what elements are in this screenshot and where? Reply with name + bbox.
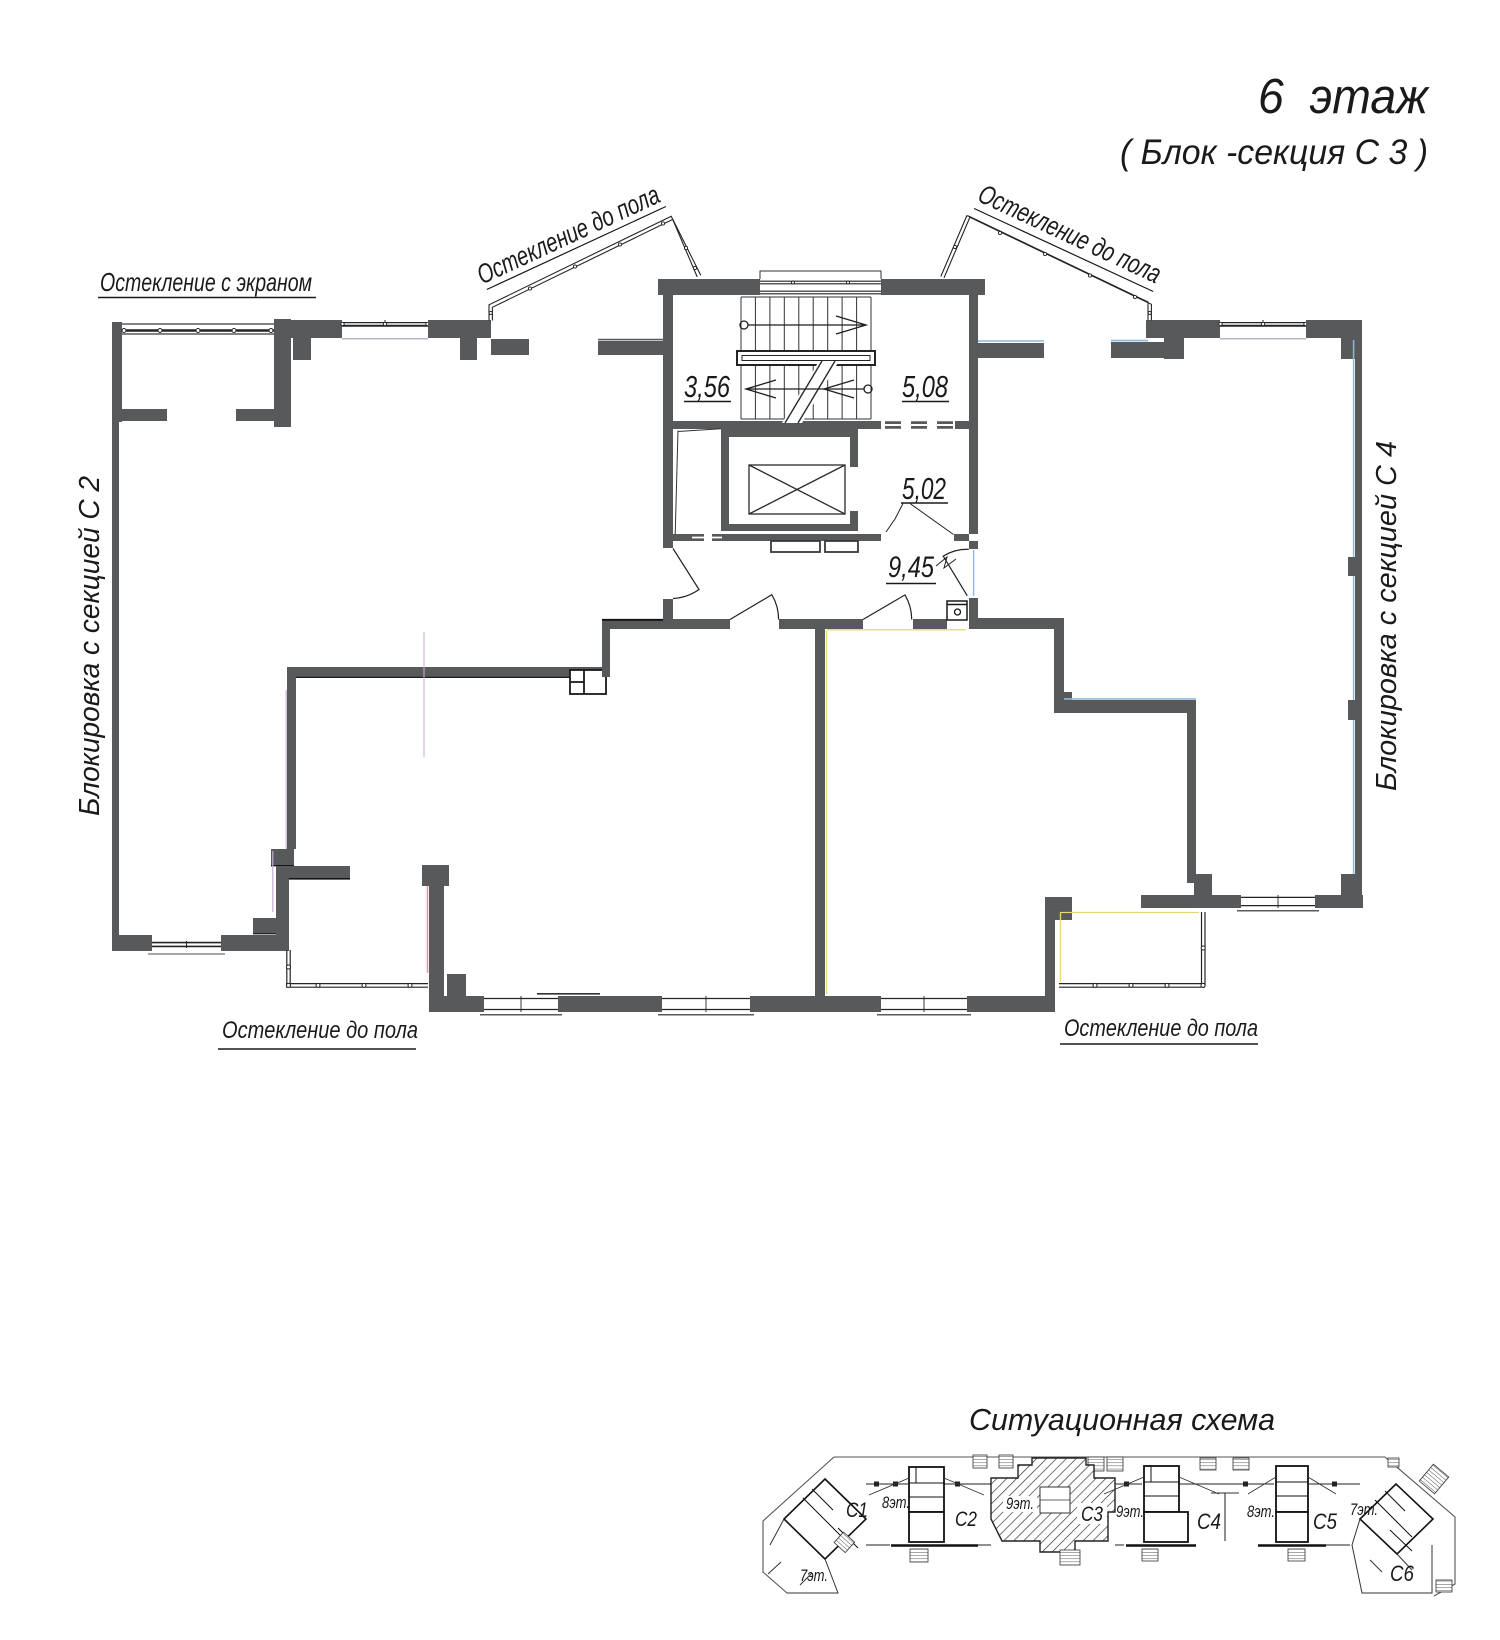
svg-text:7эт.: 7эт. — [1350, 1500, 1378, 1519]
svg-text:6 этаж: 6 этаж — [1258, 70, 1430, 124]
svg-text:Блокировка с секцией С 2: Блокировка с секцией С 2 — [74, 476, 106, 816]
svg-text:9,45: 9,45 — [888, 551, 934, 584]
svg-text:8эт.: 8эт. — [1247, 1502, 1275, 1521]
svg-text:Остекление до пола: Остекление до пола — [222, 1017, 418, 1044]
svg-text:9эт.: 9эт. — [1006, 1494, 1034, 1513]
svg-text:7эт.: 7эт. — [800, 1566, 828, 1585]
svg-text:8эт.: 8эт. — [882, 1493, 910, 1512]
svg-text:Ситуационная схема: Ситуационная схема — [969, 1402, 1275, 1437]
svg-text:5,02: 5,02 — [902, 471, 946, 506]
svg-text:С4: С4 — [1197, 1509, 1221, 1534]
svg-text:С3: С3 — [1081, 1503, 1103, 1526]
svg-text:С1: С1 — [846, 1499, 868, 1522]
svg-text:( Блок -секция С 3 ): ( Блок -секция С 3 ) — [1120, 133, 1428, 172]
svg-text:С6: С6 — [1390, 1561, 1415, 1586]
svg-text:Блокировка с секцией С 4: Блокировка с секцией С 4 — [1371, 441, 1403, 791]
svg-text:С2: С2 — [955, 1508, 977, 1531]
svg-text:С5: С5 — [1313, 1509, 1338, 1534]
svg-text:Остекление до пола: Остекление до пола — [1064, 1015, 1258, 1042]
svg-text:5,08: 5,08 — [902, 369, 949, 404]
svg-text:3,56: 3,56 — [684, 369, 731, 404]
svg-text:Остекление с экраном: Остекление с экраном — [100, 267, 312, 297]
svg-text:9эт.: 9эт. — [1116, 1502, 1144, 1521]
